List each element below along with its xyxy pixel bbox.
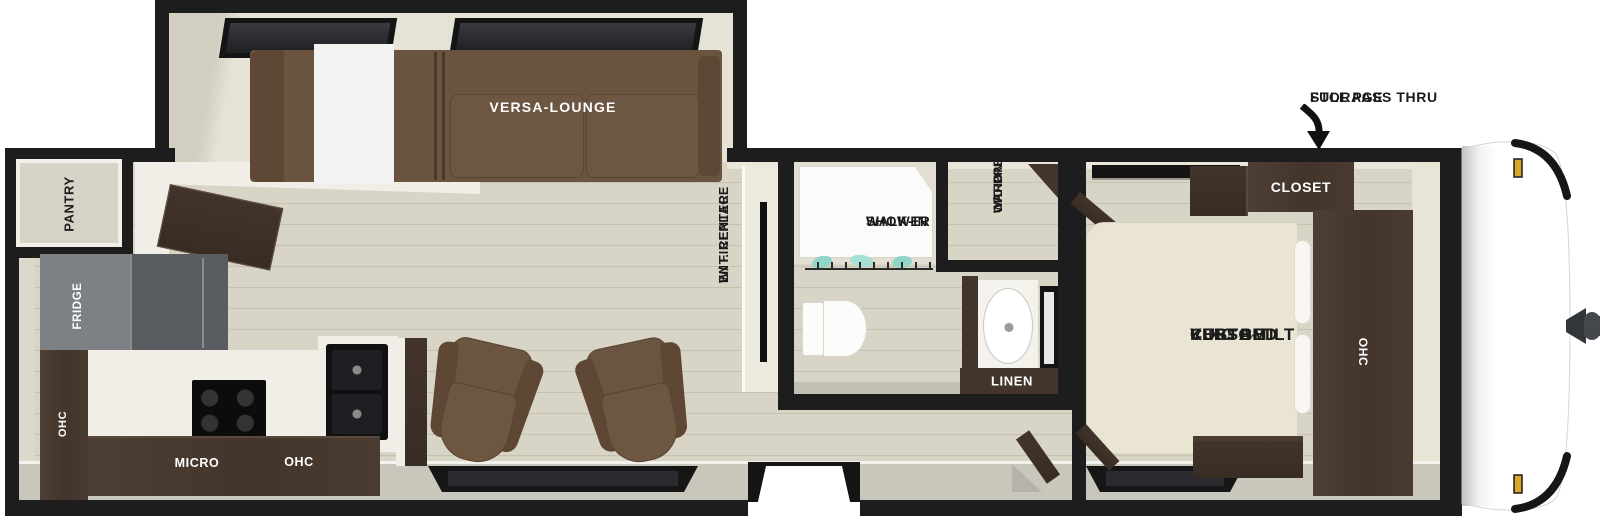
fridge-door: [130, 254, 228, 352]
pass-thru-arrow-icon: [1296, 104, 1340, 152]
bed-pillow: [1294, 240, 1311, 324]
sink-basin: [332, 350, 382, 390]
ward-bottom-wall: [936, 260, 1072, 272]
closet-label: CLOSET: [1271, 179, 1331, 195]
fridge-label: FRIDGE: [72, 282, 84, 329]
shower-pan: [799, 166, 933, 258]
right-wall-inner-face: [1412, 162, 1440, 500]
front-cap: [1460, 136, 1600, 516]
bath-left-wall: [778, 150, 794, 410]
bottom-exterior-wall: [5, 500, 1462, 516]
kitchen-lower-cabinet: [88, 436, 380, 496]
cooktop-stove: [192, 380, 266, 440]
fridge-handle: [202, 258, 204, 348]
tv-icon: [760, 202, 767, 362]
bath-bottom-wall: [778, 394, 1072, 410]
top-wall-main-segment: [727, 148, 1462, 162]
sofa-armrest-line: [442, 52, 445, 180]
vanity-mirror-glass: [1044, 292, 1054, 364]
window-glass: [448, 471, 678, 486]
window-glass: [456, 23, 697, 53]
ward-label-line3: OPTION: [990, 163, 1006, 213]
chair-seat: [434, 381, 519, 469]
kitchen-ohc-label: OHC: [284, 455, 314, 469]
bedroom-ohc-label: OHC: [1356, 338, 1370, 366]
fridge-body: [40, 254, 130, 352]
shower-glass-bar: [805, 268, 933, 270]
vanity-side-panel: [962, 276, 978, 376]
shower-ward-divider-wall: [936, 150, 948, 272]
sink-basin: [332, 394, 382, 434]
linen-label: LINEN: [991, 374, 1033, 389]
cabinet-end-trim: [396, 338, 405, 466]
vanity-sink: [983, 288, 1033, 364]
bed-footboard-storage: [1193, 436, 1303, 478]
slideout-right-wall: [733, 0, 747, 162]
chair-seat: [599, 381, 683, 468]
pantry-label: PANTRY: [62, 176, 77, 232]
toilet-tank: [802, 302, 824, 356]
king-bed-label-line3: KING BED: [1190, 322, 1278, 347]
sofa-table: [314, 44, 394, 184]
sofa-armrest-line: [434, 52, 437, 180]
entry-door-header: [748, 462, 860, 466]
slideout-left-wall: [155, 0, 169, 162]
versa-lounge-label: VERSA-LOUNGE: [489, 99, 616, 115]
micro-label: MICRO: [175, 456, 220, 470]
living-window: [428, 466, 698, 492]
kitchen-sink: [326, 344, 388, 440]
sofa-arm-left: [250, 50, 284, 182]
slideout-top-wall: [155, 0, 747, 13]
shower-label-line2: SHOWER: [866, 214, 930, 230]
right-exterior-wall: [1440, 148, 1462, 516]
toilet-bowl: [823, 300, 867, 357]
bed-pillow: [1294, 334, 1311, 414]
sofa-bolster: [698, 56, 720, 176]
bedside-cabinet: [1190, 166, 1248, 216]
floorplan-canvas: PANTRY FRIDGE OHC MICRO OHC VERSA-LOUNGE…: [0, 0, 1600, 516]
kitchen-ohc-left-label: OHC: [57, 411, 69, 437]
bath-right-wall: [1058, 150, 1072, 410]
ent-center-label-line2: W/ FIREPLACE: [714, 186, 735, 283]
